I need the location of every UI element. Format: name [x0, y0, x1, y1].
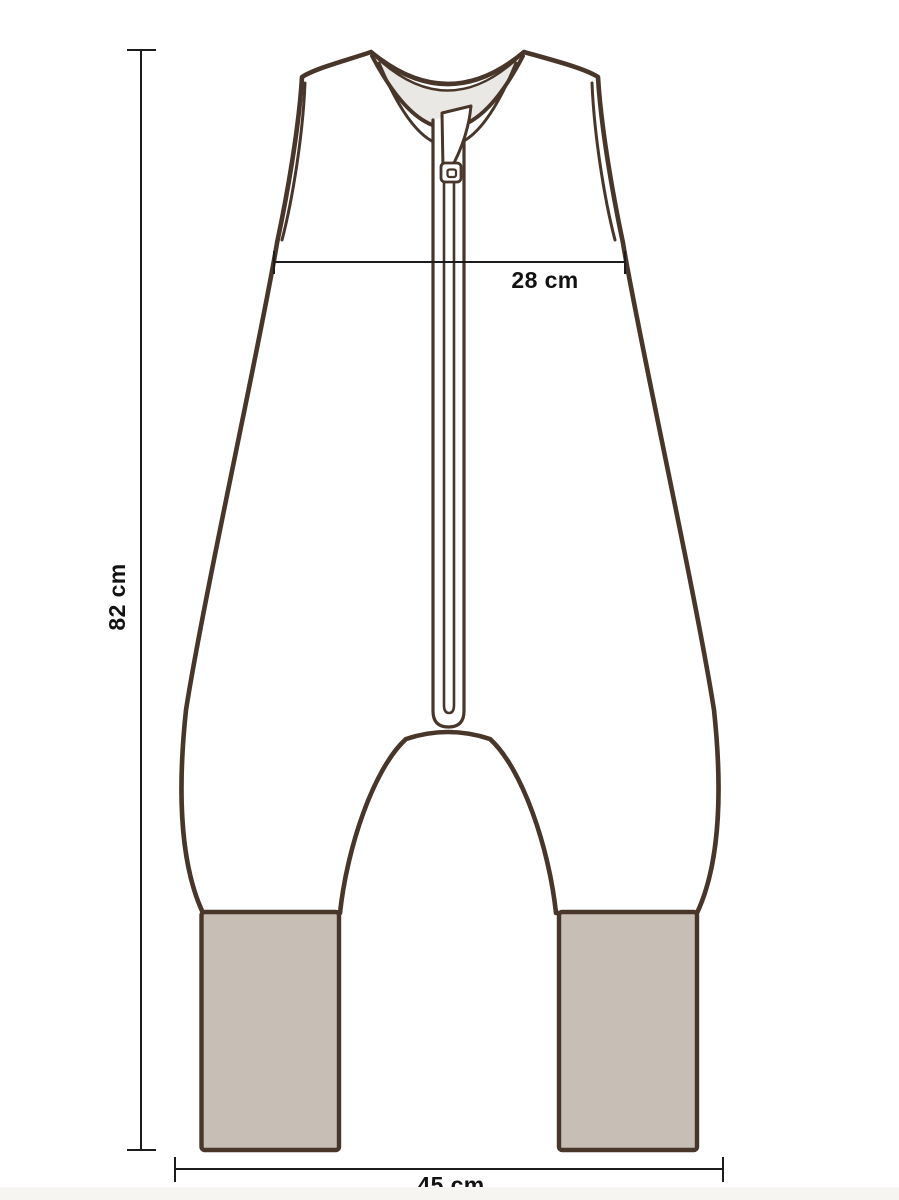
total-height-label: 82 cm — [104, 563, 130, 630]
bottom-edge-strip — [0, 1187, 899, 1200]
leg-cuff-left — [202, 912, 340, 1150]
sleep-suit-size-diagram: 28 cm 82 cm 45 cm — [0, 0, 899, 1200]
leg-cuff-right — [559, 912, 697, 1150]
zipper-band — [433, 113, 464, 727]
size-diagram-canvas: 28 cm 82 cm 45 cm — [0, 0, 899, 1200]
zipper-pull — [441, 163, 461, 182]
chest-width-label: 28 cm — [511, 267, 578, 293]
garment-drawing — [182, 52, 719, 1150]
height-dimension — [127, 50, 156, 1150]
